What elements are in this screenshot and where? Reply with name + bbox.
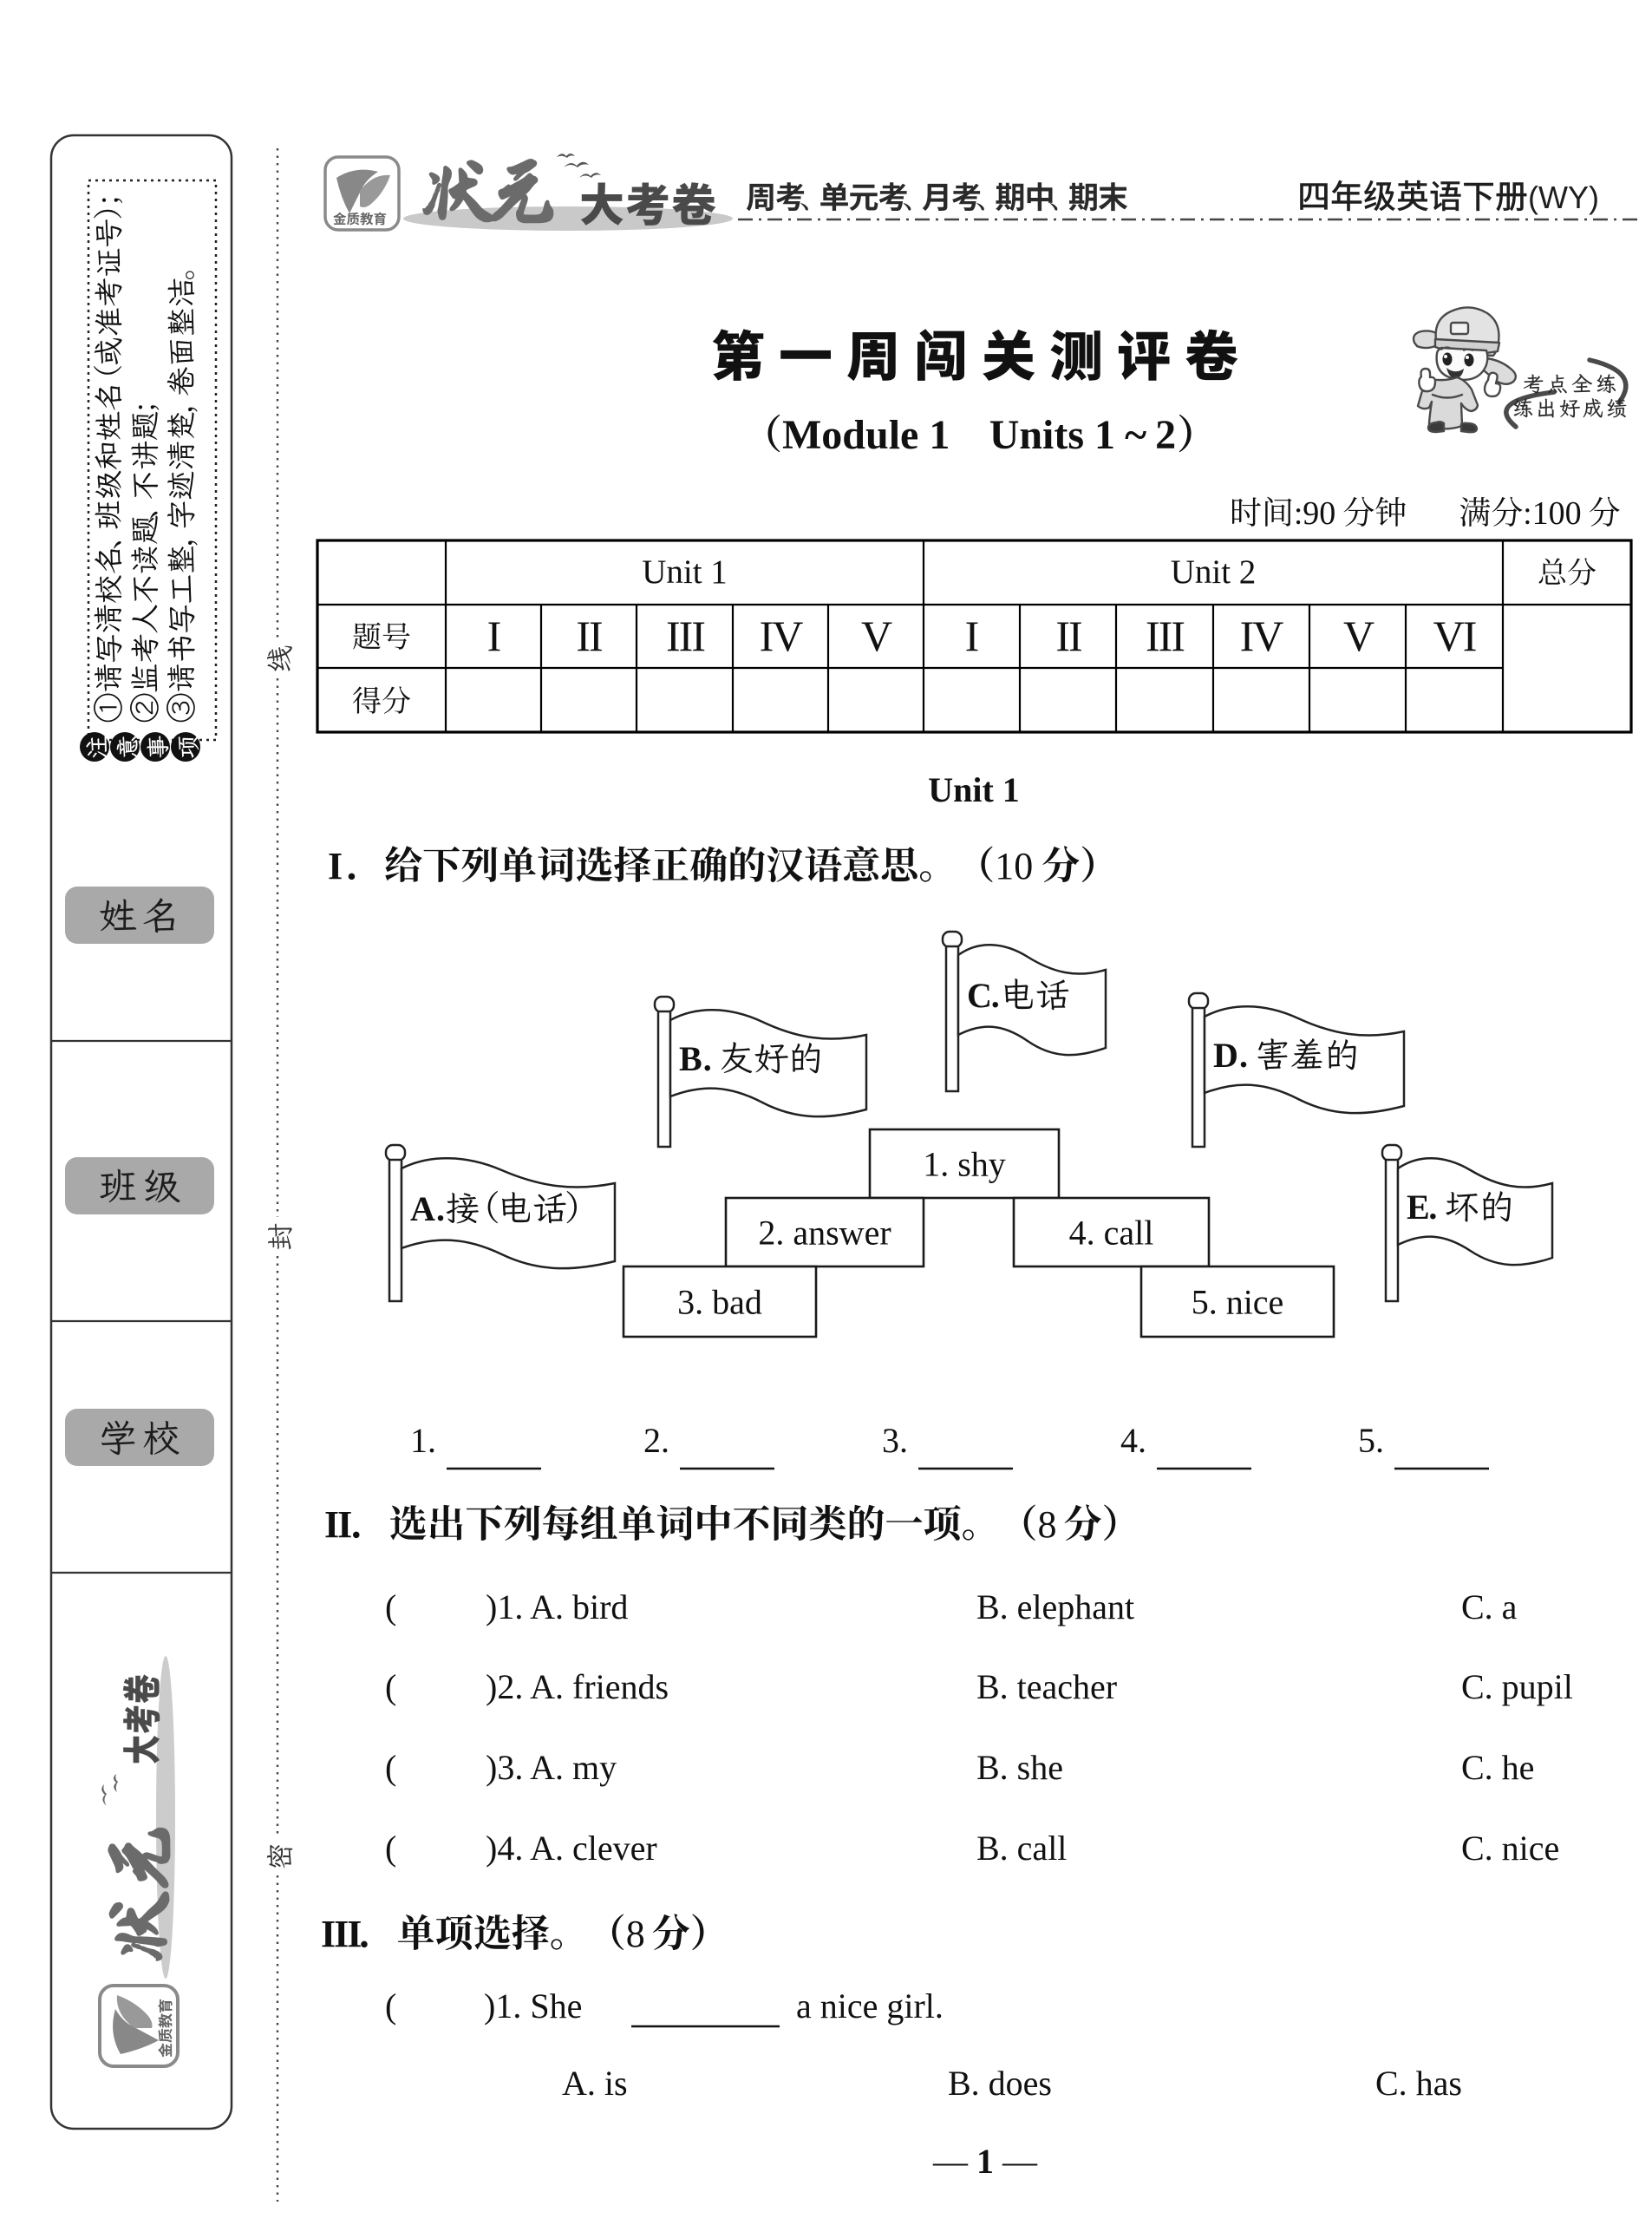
svg-text:2. answer: 2. answer bbox=[758, 1214, 891, 1253]
svg-text:B. she: B. she bbox=[976, 1748, 1063, 1787]
svg-text:1. shy: 1. shy bbox=[923, 1145, 1006, 1184]
svg-text:B. call: B. call bbox=[976, 1829, 1067, 1868]
svg-text:C. nice: C. nice bbox=[1461, 1829, 1559, 1868]
svg-text:10: 10 bbox=[995, 845, 1033, 887]
svg-text:2.: 2. bbox=[643, 1421, 669, 1460]
svg-text:Module 1: Module 1 bbox=[782, 412, 950, 458]
svg-text:.: . bbox=[991, 976, 1000, 1015]
svg-text:C. a: C. a bbox=[1461, 1587, 1518, 1626]
svg-text:Unit 1: Unit 1 bbox=[642, 553, 728, 591]
svg-text:C. has: C. has bbox=[1375, 2064, 1462, 2103]
svg-text:3. bad: 3. bad bbox=[677, 1283, 762, 1322]
svg-text:— 1 —: — 1 — bbox=[932, 2142, 1038, 2181]
svg-text:Units 1: Units 1 bbox=[989, 412, 1115, 458]
svg-text:III: III bbox=[1146, 612, 1184, 660]
svg-text:100: 100 bbox=[1532, 495, 1582, 532]
svg-text:1.: 1. bbox=[410, 1421, 436, 1460]
svg-text:D: D bbox=[1213, 1036, 1238, 1075]
svg-text:V: V bbox=[861, 612, 892, 660]
svg-text:8: 8 bbox=[626, 1913, 645, 1955]
svg-text:C. he: C. he bbox=[1461, 1748, 1534, 1787]
svg-text:B. teacher: B. teacher bbox=[976, 1667, 1117, 1706]
svg-text:I: I bbox=[328, 845, 343, 887]
svg-text:IV: IV bbox=[1240, 612, 1284, 660]
svg-text:(: ( bbox=[385, 1829, 396, 1868]
svg-text:A. is: A. is bbox=[562, 2064, 628, 2103]
svg-text:(WY): (WY) bbox=[1528, 180, 1599, 215]
svg-text:4.: 4. bbox=[1120, 1421, 1146, 1460]
svg-text:~: ~ bbox=[1125, 412, 1146, 458]
svg-text:I: I bbox=[965, 612, 978, 660]
svg-text:4. call: 4. call bbox=[1069, 1214, 1154, 1253]
svg-text:A: A bbox=[410, 1189, 435, 1228]
svg-text:(: ( bbox=[385, 1748, 396, 1787]
svg-text:.: . bbox=[703, 1039, 712, 1078]
svg-text:.: . bbox=[1428, 1188, 1437, 1227]
svg-text:B. does: B. does bbox=[948, 2064, 1052, 2103]
svg-text:)1. A. bird: )1. A. bird bbox=[486, 1587, 628, 1626]
svg-text:)4. A. clever: )4. A. clever bbox=[486, 1829, 657, 1868]
svg-text:Unit 1: Unit 1 bbox=[928, 770, 1020, 809]
svg-text:(: ( bbox=[385, 1587, 396, 1626]
svg-text::: : bbox=[1523, 496, 1531, 532]
svg-text:Unit 2: Unit 2 bbox=[1171, 553, 1257, 591]
svg-text:2: 2 bbox=[1155, 412, 1176, 458]
svg-text:II: II bbox=[576, 612, 602, 660]
svg-text:)2. A. friends: )2. A. friends bbox=[486, 1667, 669, 1706]
svg-text:)3. A. my: )3. A. my bbox=[486, 1748, 617, 1787]
svg-text:V: V bbox=[1343, 612, 1374, 660]
svg-text:II: II bbox=[1055, 612, 1081, 660]
svg-text:C. pupil: C. pupil bbox=[1461, 1667, 1573, 1706]
svg-text:B. elephant: B. elephant bbox=[976, 1587, 1134, 1626]
svg-text:II: II bbox=[324, 1503, 351, 1546]
svg-text:III: III bbox=[321, 1913, 361, 1955]
svg-text::: : bbox=[1294, 496, 1303, 532]
svg-text:C: C bbox=[967, 976, 992, 1015]
svg-text:III: III bbox=[666, 612, 704, 660]
svg-text:.: . bbox=[436, 1189, 445, 1228]
svg-text:B: B bbox=[679, 1039, 702, 1078]
svg-text:5.: 5. bbox=[1358, 1421, 1384, 1460]
svg-text:.: . bbox=[1239, 1036, 1248, 1075]
svg-text:90: 90 bbox=[1303, 495, 1335, 532]
svg-text:E: E bbox=[1407, 1188, 1430, 1227]
svg-text:I: I bbox=[487, 612, 500, 660]
svg-text:)1. She: )1. She bbox=[484, 1986, 582, 2025]
svg-text:5. nice: 5. nice bbox=[1192, 1283, 1284, 1322]
svg-text:(: ( bbox=[385, 1986, 396, 2025]
svg-text:VI: VI bbox=[1433, 612, 1476, 660]
svg-text:8: 8 bbox=[1038, 1503, 1057, 1546]
svg-text:a nice girl.: a nice girl. bbox=[796, 1986, 944, 2025]
svg-text:IV: IV bbox=[760, 612, 804, 660]
svg-text:(: ( bbox=[385, 1667, 396, 1706]
svg-text:3.: 3. bbox=[882, 1421, 908, 1460]
